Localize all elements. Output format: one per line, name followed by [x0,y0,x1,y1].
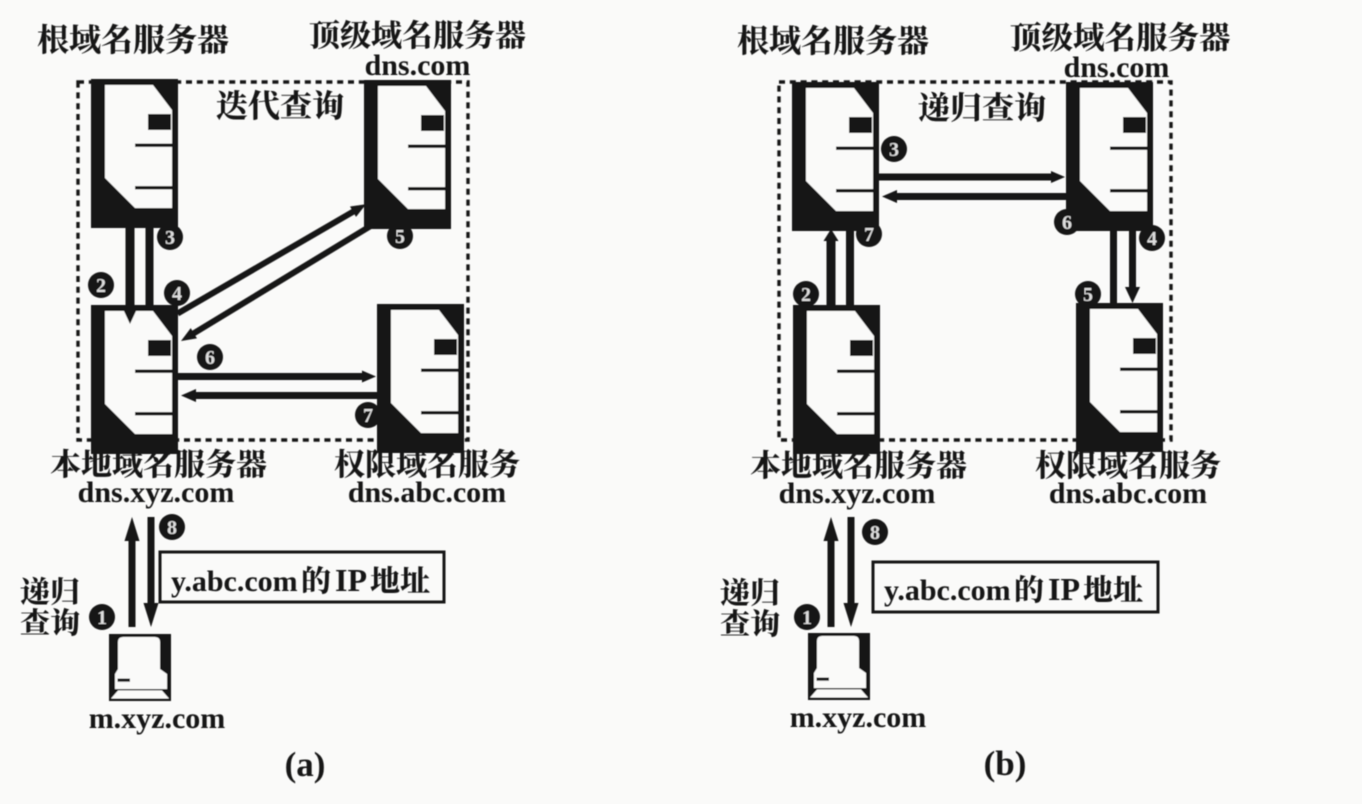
svg-text:dns.abc.com: dns.abc.com [1049,477,1207,510]
svg-text:3: 3 [165,227,175,249]
svg-text:5: 5 [1083,284,1093,306]
svg-text:7: 7 [864,224,874,246]
svg-text:y.abc.com: y.abc.com [884,574,1011,607]
svg-text:dns.com: dns.com [1064,51,1170,84]
svg-text:(b): (b) [984,744,1027,783]
svg-text:dns.com: dns.com [365,49,471,82]
svg-text:4: 4 [172,283,182,305]
svg-text:2: 2 [96,275,106,297]
svg-text:2: 2 [801,284,811,306]
svg-text:1: 1 [97,607,107,629]
svg-text:8: 8 [870,522,880,544]
svg-text:dns.abc.com: dns.abc.com [348,476,506,509]
svg-text:(a): (a) [285,745,326,784]
svg-text:m.xyz.com: m.xyz.com [89,702,226,735]
svg-text:IP: IP [1048,571,1080,607]
svg-text:5: 5 [395,226,405,248]
svg-text:6: 6 [205,347,215,369]
svg-text:1: 1 [802,607,812,629]
svg-text:7: 7 [363,405,373,427]
svg-text:4: 4 [1147,228,1157,250]
svg-text:6: 6 [1062,212,1072,234]
svg-text:dns.xyz.com: dns.xyz.com [779,477,936,510]
svg-text:y.abc.com: y.abc.com [171,565,298,598]
svg-text:8: 8 [167,517,177,539]
svg-text:3: 3 [889,139,899,161]
svg-text:IP: IP [335,562,367,598]
svg-text:m.xyz.com: m.xyz.com [790,701,927,734]
svg-text:dns.xyz.com: dns.xyz.com [78,476,235,509]
